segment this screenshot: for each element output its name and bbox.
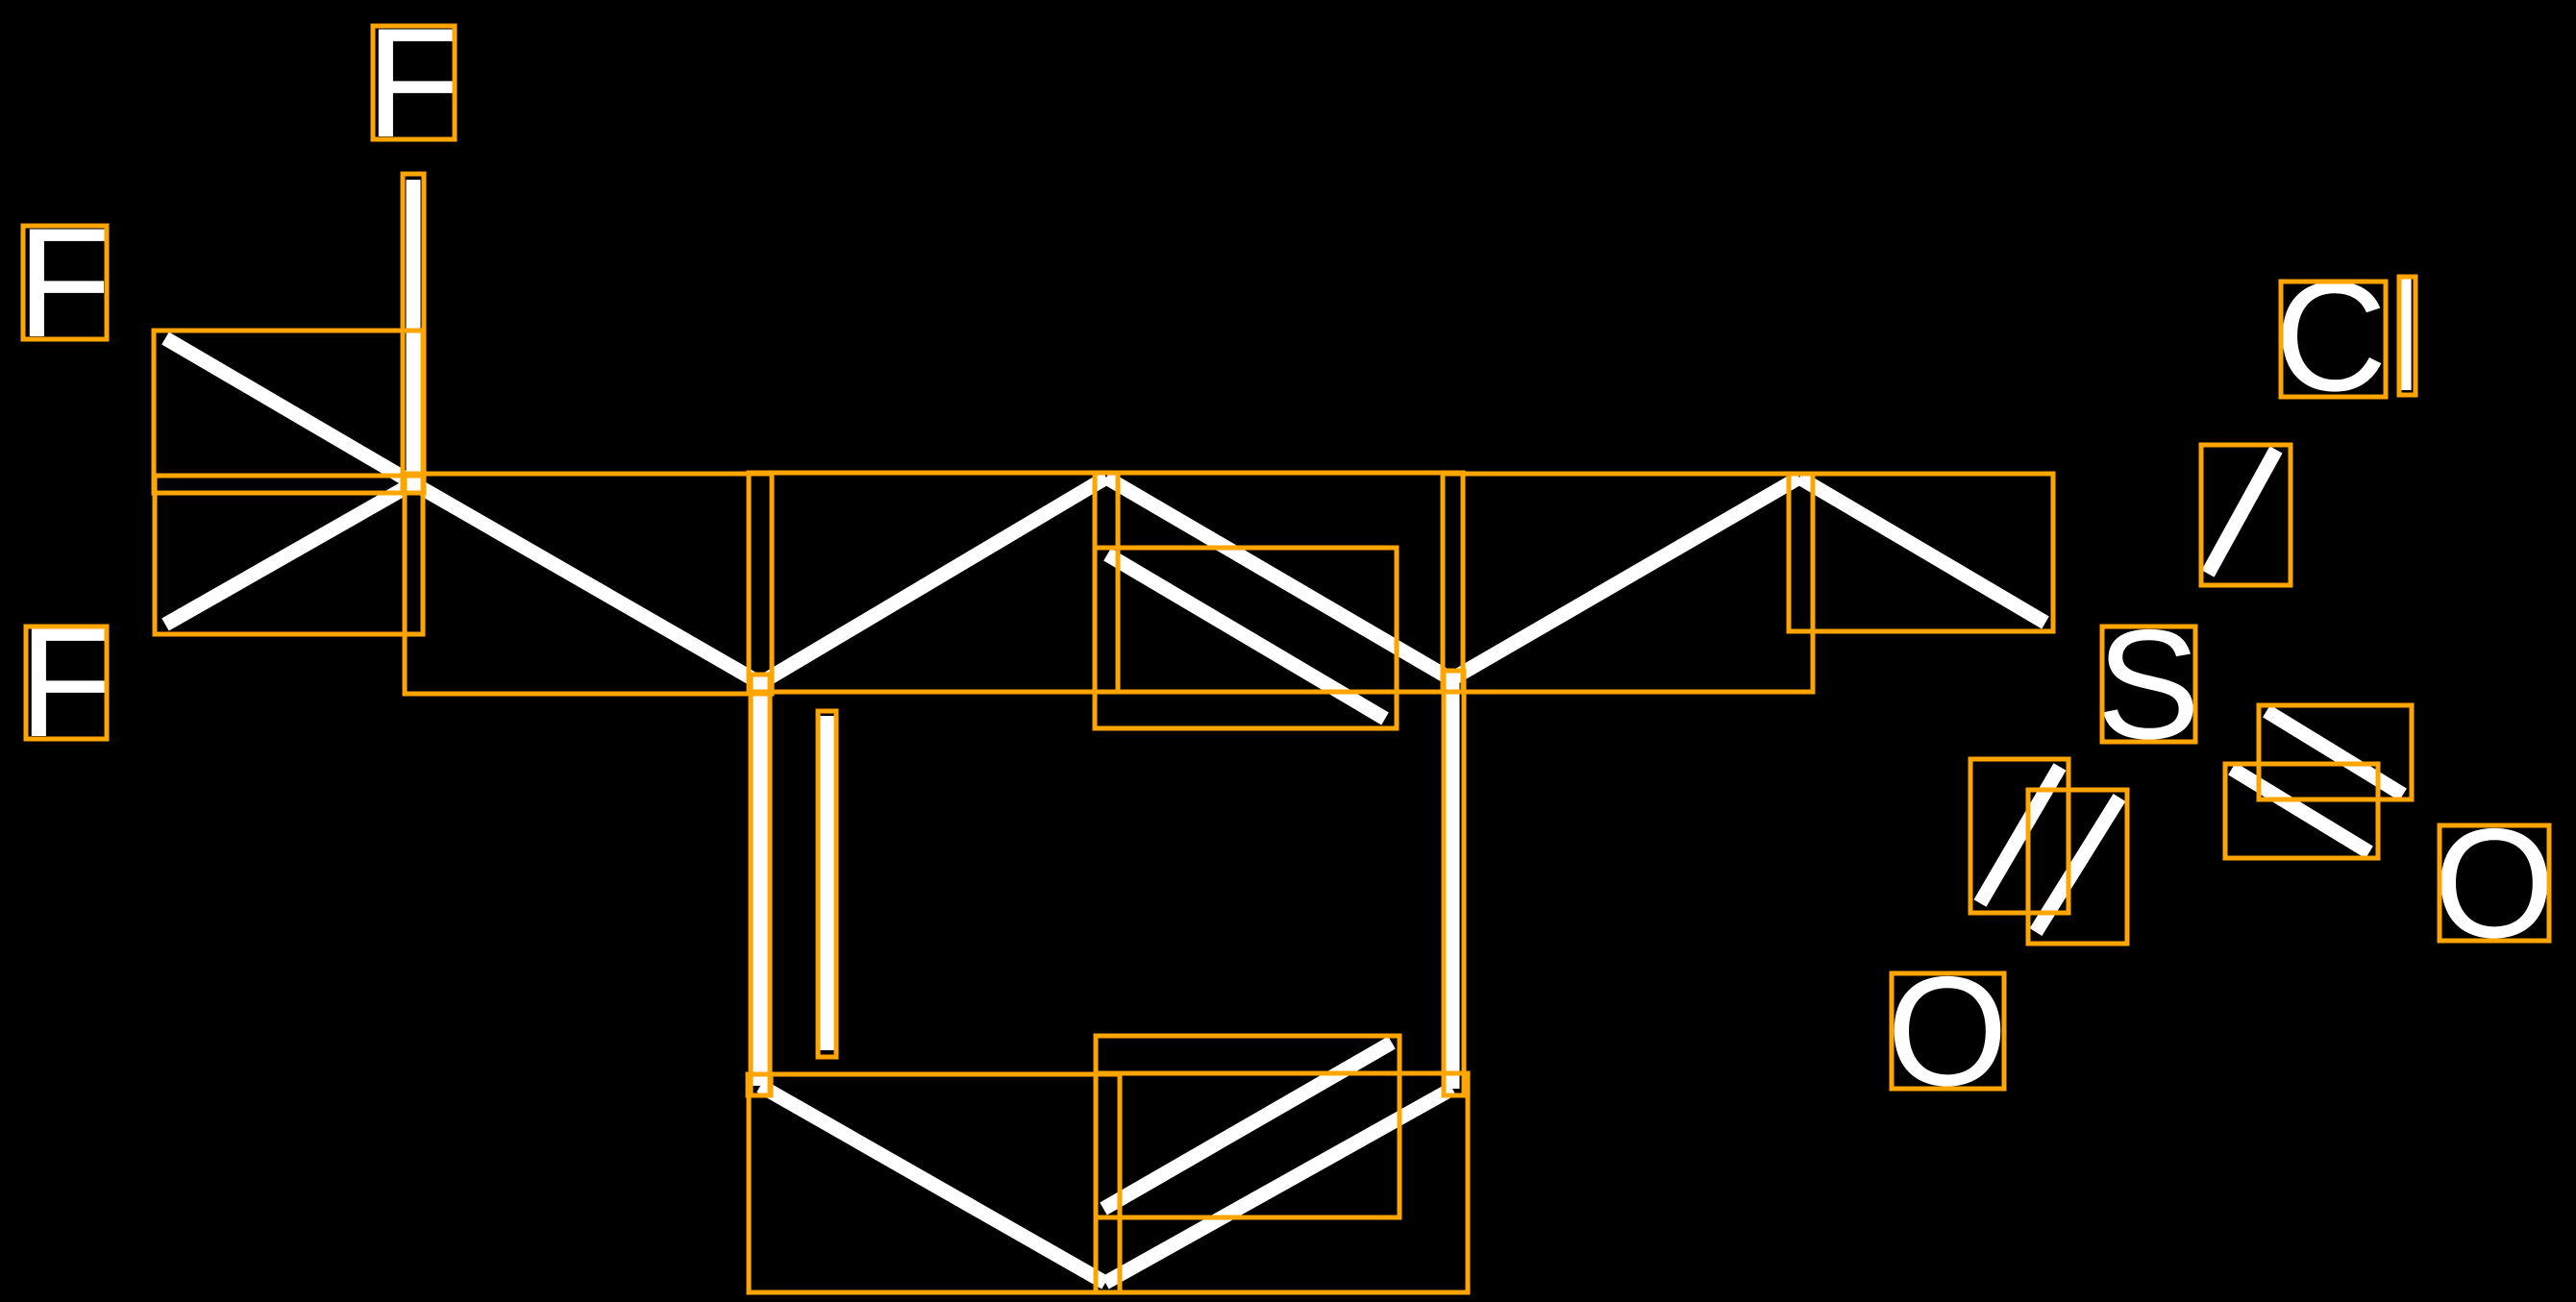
molecule-structure-svg: FFFClSOO [0, 0, 2576, 1302]
atom-o-left: O [1887, 945, 2008, 1118]
atom-f-bottom: F [19, 596, 114, 770]
atom-o-right: O [2434, 797, 2555, 970]
atom-f-left: F [17, 196, 112, 370]
molecule-annotation-view: FFFClSOO [0, 0, 2576, 1302]
atom-s: S [2096, 598, 2200, 772]
